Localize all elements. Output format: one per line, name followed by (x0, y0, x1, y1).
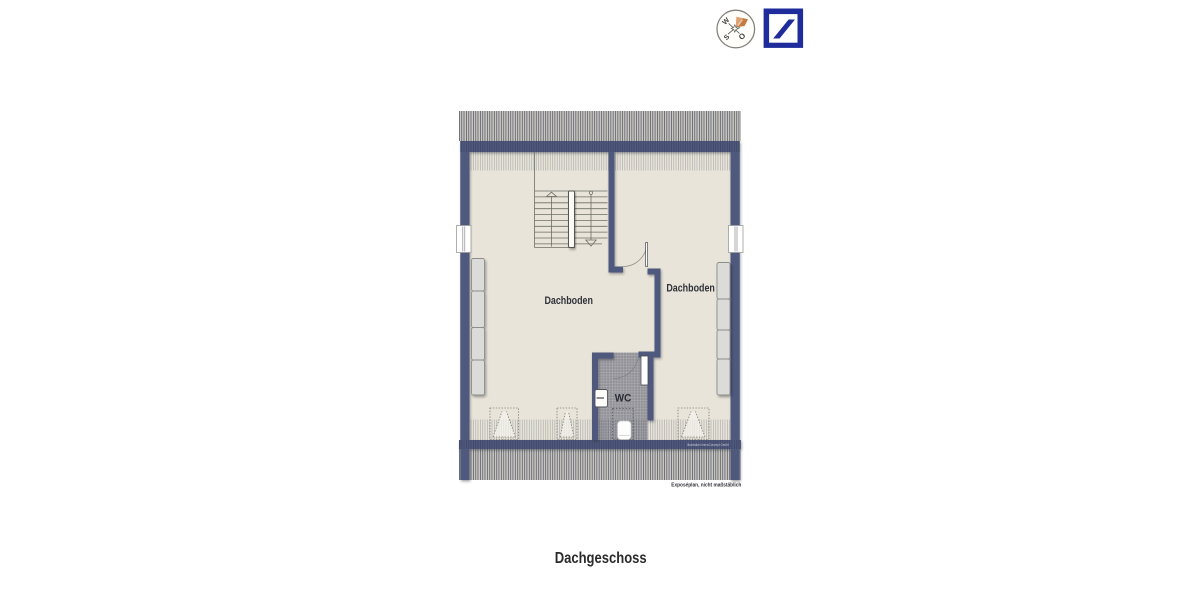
svg-text:WC: WC (615, 393, 632, 405)
svg-text:Dachgeschoss: Dachgeschoss (555, 550, 647, 567)
svg-text:Illustration ImmoConzept GmbH: Illustration ImmoConzept GmbH (687, 443, 730, 447)
svg-text:Exposéplan, nicht maßstäblich: Exposéplan, nicht maßstäblich (671, 483, 741, 489)
svg-text:Dachboden: Dachboden (666, 282, 715, 294)
svg-text:Dachboden: Dachboden (544, 295, 593, 307)
